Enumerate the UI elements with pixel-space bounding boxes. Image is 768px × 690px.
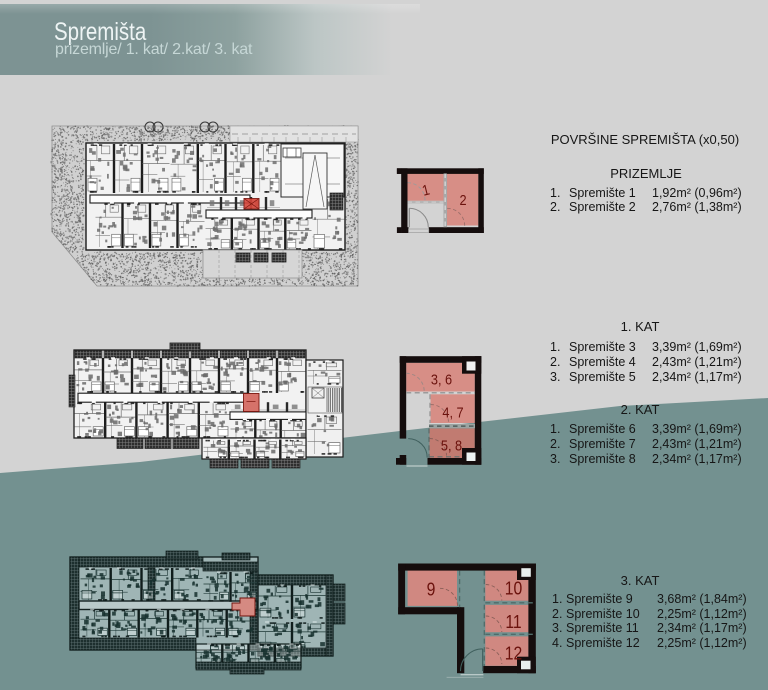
svg-text:5, 8: 5, 8 <box>441 437 462 454</box>
svg-text:4, 7: 4, 7 <box>442 403 463 420</box>
svg-text:10: 10 <box>505 577 522 599</box>
svg-text:2: 2 <box>459 191 466 208</box>
svg-text:12: 12 <box>505 642 522 664</box>
svg-text:3, 6: 3, 6 <box>431 370 452 387</box>
svg-text:9: 9 <box>427 578 436 600</box>
svg-text:11: 11 <box>505 611 521 633</box>
